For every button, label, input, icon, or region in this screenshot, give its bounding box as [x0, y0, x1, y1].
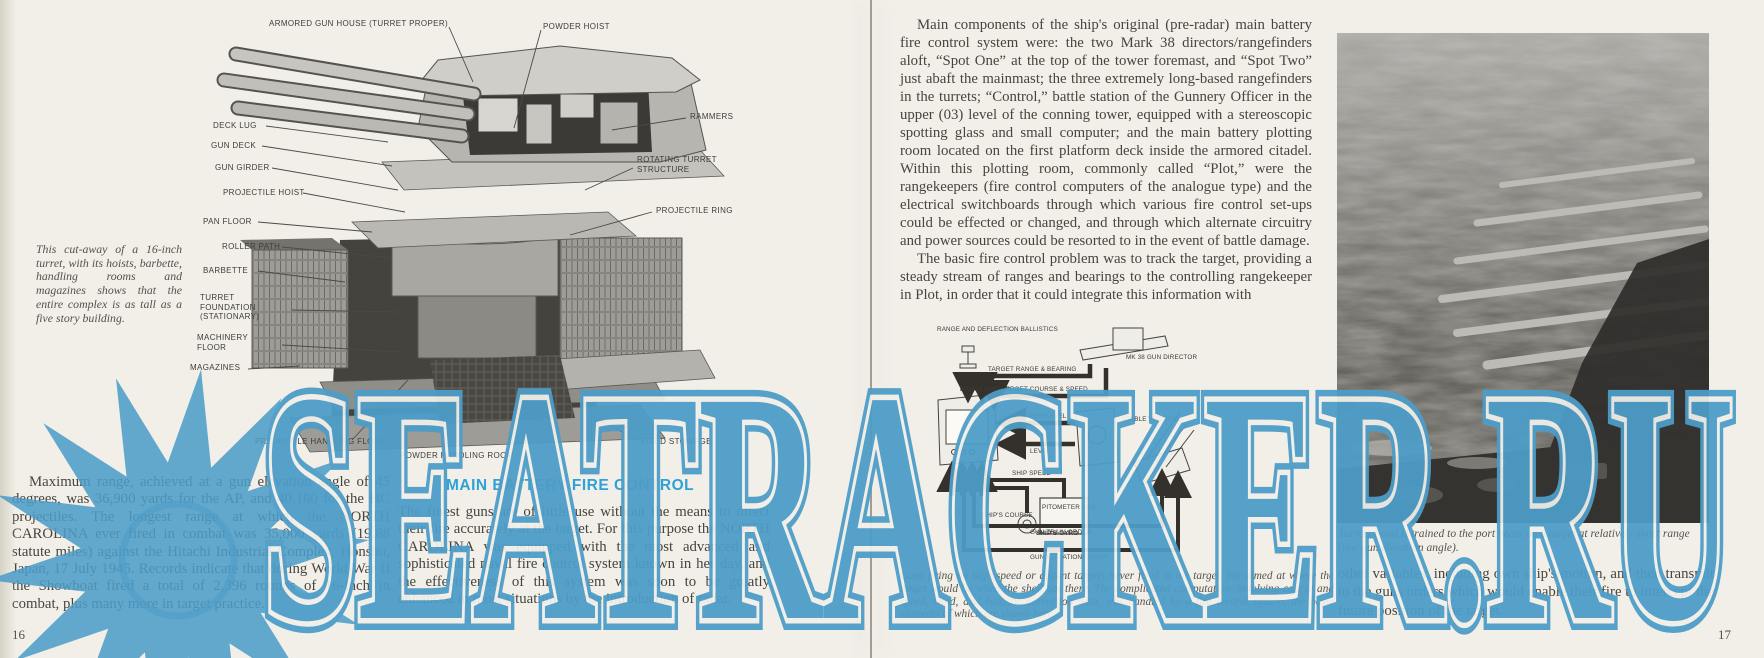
- diagram-label-powder-hoist: POWDER HOIST: [543, 22, 610, 32]
- diagram-label-deck-lug: DECK LUG: [213, 121, 257, 131]
- max-range-paragraph: Maximum range, achieved at a gun elevati…: [12, 474, 390, 613]
- schematic-label-mk38-director: MK 38 GUN DIRECTOR: [1126, 354, 1188, 361]
- schematic-label-gun-train-order: GUN TRAIN ORDER: [1030, 529, 1091, 536]
- diagram-label-magazines: MAGAZINES: [190, 363, 240, 373]
- diagram-label-projectile-ring: PROJECTILE RING: [656, 206, 733, 216]
- diagram-label-fixed-stowage: FIXED STOWAGE: [641, 437, 712, 447]
- diagram-label-pan-floor: PAN FLOOR: [203, 217, 252, 227]
- page-number-17: 17: [1718, 627, 1731, 643]
- schematic-label-crosslevel: CROSSLEVEL: [1023, 413, 1067, 420]
- diagram-label-powder-handling-room: POWDER HANDLING ROOM: [400, 451, 514, 461]
- page-16: ARMORED GUN HOUSE (TURRET PROPER) POWDER…: [0, 0, 871, 658]
- page-number-16: 16: [12, 627, 25, 643]
- diagram-label-roller-path: ROLLER PATH: [222, 242, 280, 252]
- diagram-label-gun-girder: GUN GIRDER: [215, 163, 270, 173]
- turrets-photo: [1337, 33, 1709, 523]
- diagram-label-gun-deck: GUN DECK: [211, 141, 256, 151]
- schematic-label-ballistics: RANGE AND DEFLECTION BALLISTICS: [937, 326, 1027, 333]
- schematic-label-pitometer-log: PITOMETER LOG: [1042, 504, 1086, 511]
- schematic-label-target-course-speed: TARGET COURSE & SPEED: [1002, 386, 1088, 393]
- schematic-caption: Guns firing on high speed or distant tar…: [900, 570, 1334, 621]
- page-gutter: [870, 0, 872, 658]
- schematic-label-stable-vertical: STABLE VERTICAL: [1122, 416, 1164, 423]
- diagram-label-projectile-handling-floor: PROJECTILE HANDLING FLOOR: [255, 437, 386, 447]
- fire-control-intro-paragraph: The finest guns are of little use withou…: [398, 504, 770, 608]
- schematic-label-ships-course: SHIP'S COURSE: [982, 512, 1016, 519]
- section-heading: MAIN BATTERY FIRE CONTROL: [446, 477, 770, 495]
- photo-caption: Turrets I and II trained to the port bea…: [1338, 528, 1712, 555]
- main-components-paragraph: Main components of the ship's original (…: [900, 16, 1312, 250]
- schematic-label-target-range-bearing: TARGET RANGE & BEARING: [988, 366, 1076, 373]
- schematic-label-level: LEVEL: [1030, 448, 1050, 455]
- diagram-label-rammers: RAMMERS: [690, 112, 733, 122]
- turret-caption: This cut-away of a 16-inch turret, with …: [36, 243, 182, 325]
- page-17: Main components of the ship's original (…: [874, 0, 1764, 658]
- schematic-label-rangekeeper: RANGEKEEPER: [960, 386, 1010, 393]
- diagram-label-armored-gun-house: ARMORED GUN HOUSE (TURRET PROPER): [263, 19, 448, 29]
- closing-paragraph: other variables, including own ship's mo…: [1338, 565, 1714, 620]
- diagram-label-turret-foundation: TURRET FOUNDATION (STATIONARY): [200, 293, 264, 322]
- middle-column: MAIN BATTERY FIRE CONTROL The finest gun…: [398, 477, 770, 608]
- basic-problem-paragraph: The basic fire control problem was to tr…: [900, 250, 1312, 304]
- book-spread: { "watermark": { "text": "SEATRACKER.RU"…: [0, 0, 1764, 658]
- diagram-label-rotating-turret-structure: ROTATING TURRET STRUCTURE: [637, 155, 727, 174]
- turret-cutaway-diagram: ARMORED GUN HOUSE (TURRET PROPER) POWDER…: [0, 0, 871, 462]
- diagram-label-projectile-hoist: PROJECTILE HOIST: [223, 188, 305, 198]
- turret-cutaway-art: [0, 0, 871, 462]
- diagram-label-machinery-floor: MACHINERY FLOOR: [197, 333, 251, 352]
- sea-photo-art: [1337, 33, 1709, 523]
- schematic-label-gun-elevation-order: GUN ELEVATION ORDER: [1030, 554, 1108, 561]
- diagram-label-barbette: BARBETTE: [203, 266, 248, 276]
- schematic-label-ship-speed: SHIP SPEED: [1012, 470, 1051, 477]
- left-column: Maximum range, achieved at a gun elevati…: [12, 474, 390, 613]
- right-text-column: Main components of the ship's original (…: [900, 16, 1312, 304]
- fire-control-schematic: RANGE AND DEFLECTION BALLISTICS MK 38 GU…: [930, 320, 1195, 568]
